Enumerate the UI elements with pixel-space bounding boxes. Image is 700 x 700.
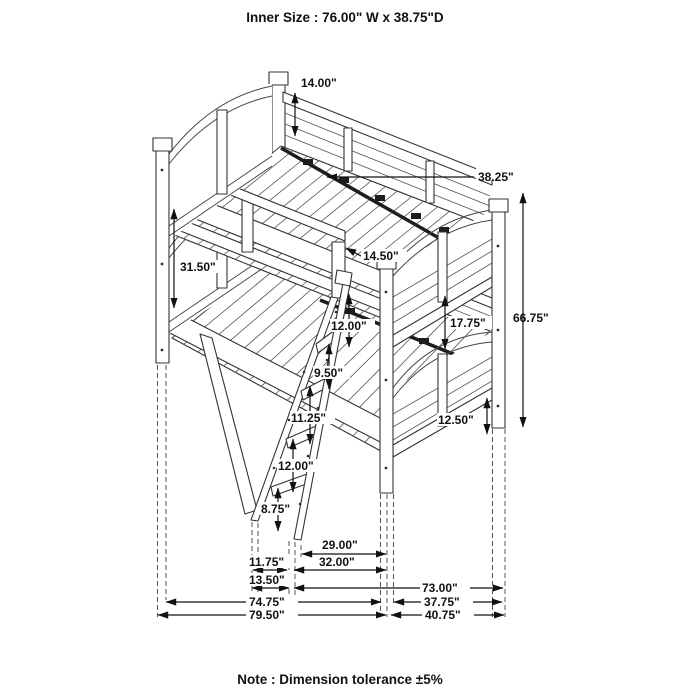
dim-inner-frame-length: 74.75" xyxy=(166,595,381,609)
dim-ladder-reach: 29.00" xyxy=(302,538,386,554)
dim-label-ladder-foot-depth: 13.50" xyxy=(249,573,285,587)
bunk-bed-dimension-diagram: 14.00" 38.25" 31.50" 14.50" 66.75" 17.75… xyxy=(0,0,700,700)
dim-label-guard-panel-height: 14.00" xyxy=(301,76,337,90)
dim-label-bunk-spacing: 31.50" xyxy=(180,260,216,274)
dim-label-under-bunk-clearance: 17.75" xyxy=(450,316,486,330)
post-near-left xyxy=(153,138,172,363)
dim-label-ladder-reach: 29.00" xyxy=(322,538,358,552)
dim-label-rung1-to-rung2: 9.50" xyxy=(314,366,343,380)
dim-label-ladder-span: 32.00" xyxy=(319,555,355,569)
tolerance-note: Note : Dimension tolerance ±5% xyxy=(237,672,442,687)
dim-label-inner-end-width: 37.75" xyxy=(424,595,460,609)
bed-drawing xyxy=(153,72,508,617)
dim-label-overall-depth: 40.75" xyxy=(425,608,461,622)
post-far-right xyxy=(489,199,508,428)
dim-label-rung2-to-rung3: 11.25" xyxy=(291,411,326,425)
diagram-title: Inner Size : 76.00" W x 38.75"D xyxy=(246,10,444,25)
dim-ladder-foot-depth: 13.50" xyxy=(248,573,294,588)
dim-label-rung3-to-rung4: 12.00" xyxy=(278,459,314,473)
dim-ladder-span: 32.00" xyxy=(294,555,386,570)
post-near-right xyxy=(377,257,396,493)
dim-inner-end-width: 37.75" xyxy=(394,595,502,609)
dim-label-rung4-to-floor: 8.75" xyxy=(261,502,290,516)
dim-label-ladder-opening: 14.50" xyxy=(363,249,399,263)
guardrail-baluster xyxy=(242,196,253,252)
dim-label-slat-support-rail: 38.25" xyxy=(478,170,514,184)
dim-overall-height: 66.75" xyxy=(513,193,549,427)
dim-label-overall-length: 79.50" xyxy=(249,608,285,622)
dim-ladder-foot-offset: 11.75" xyxy=(248,555,294,570)
dim-label-rail-to-rung1: 12.00" xyxy=(331,319,367,333)
dim-overall-depth: 40.75" xyxy=(391,608,504,622)
diagram-canvas: 14.00" 38.25" 31.50" 14.50" 66.75" 17.75… xyxy=(0,0,700,700)
dim-overall-length: 79.50" xyxy=(158,608,386,622)
ladder-hook xyxy=(335,270,352,286)
dim-label-ladder-foot-offset: 11.75" xyxy=(249,555,284,569)
dim-label-footboard-to-floor: 12.50" xyxy=(438,413,474,427)
dim-label-inner-frame-length: 74.75" xyxy=(249,595,285,609)
dim-lower-frame-length: 73.00" xyxy=(294,581,503,595)
dim-label-overall-height: 66.75" xyxy=(513,311,549,325)
dim-label-lower-frame-length: 73.00" xyxy=(422,581,458,595)
